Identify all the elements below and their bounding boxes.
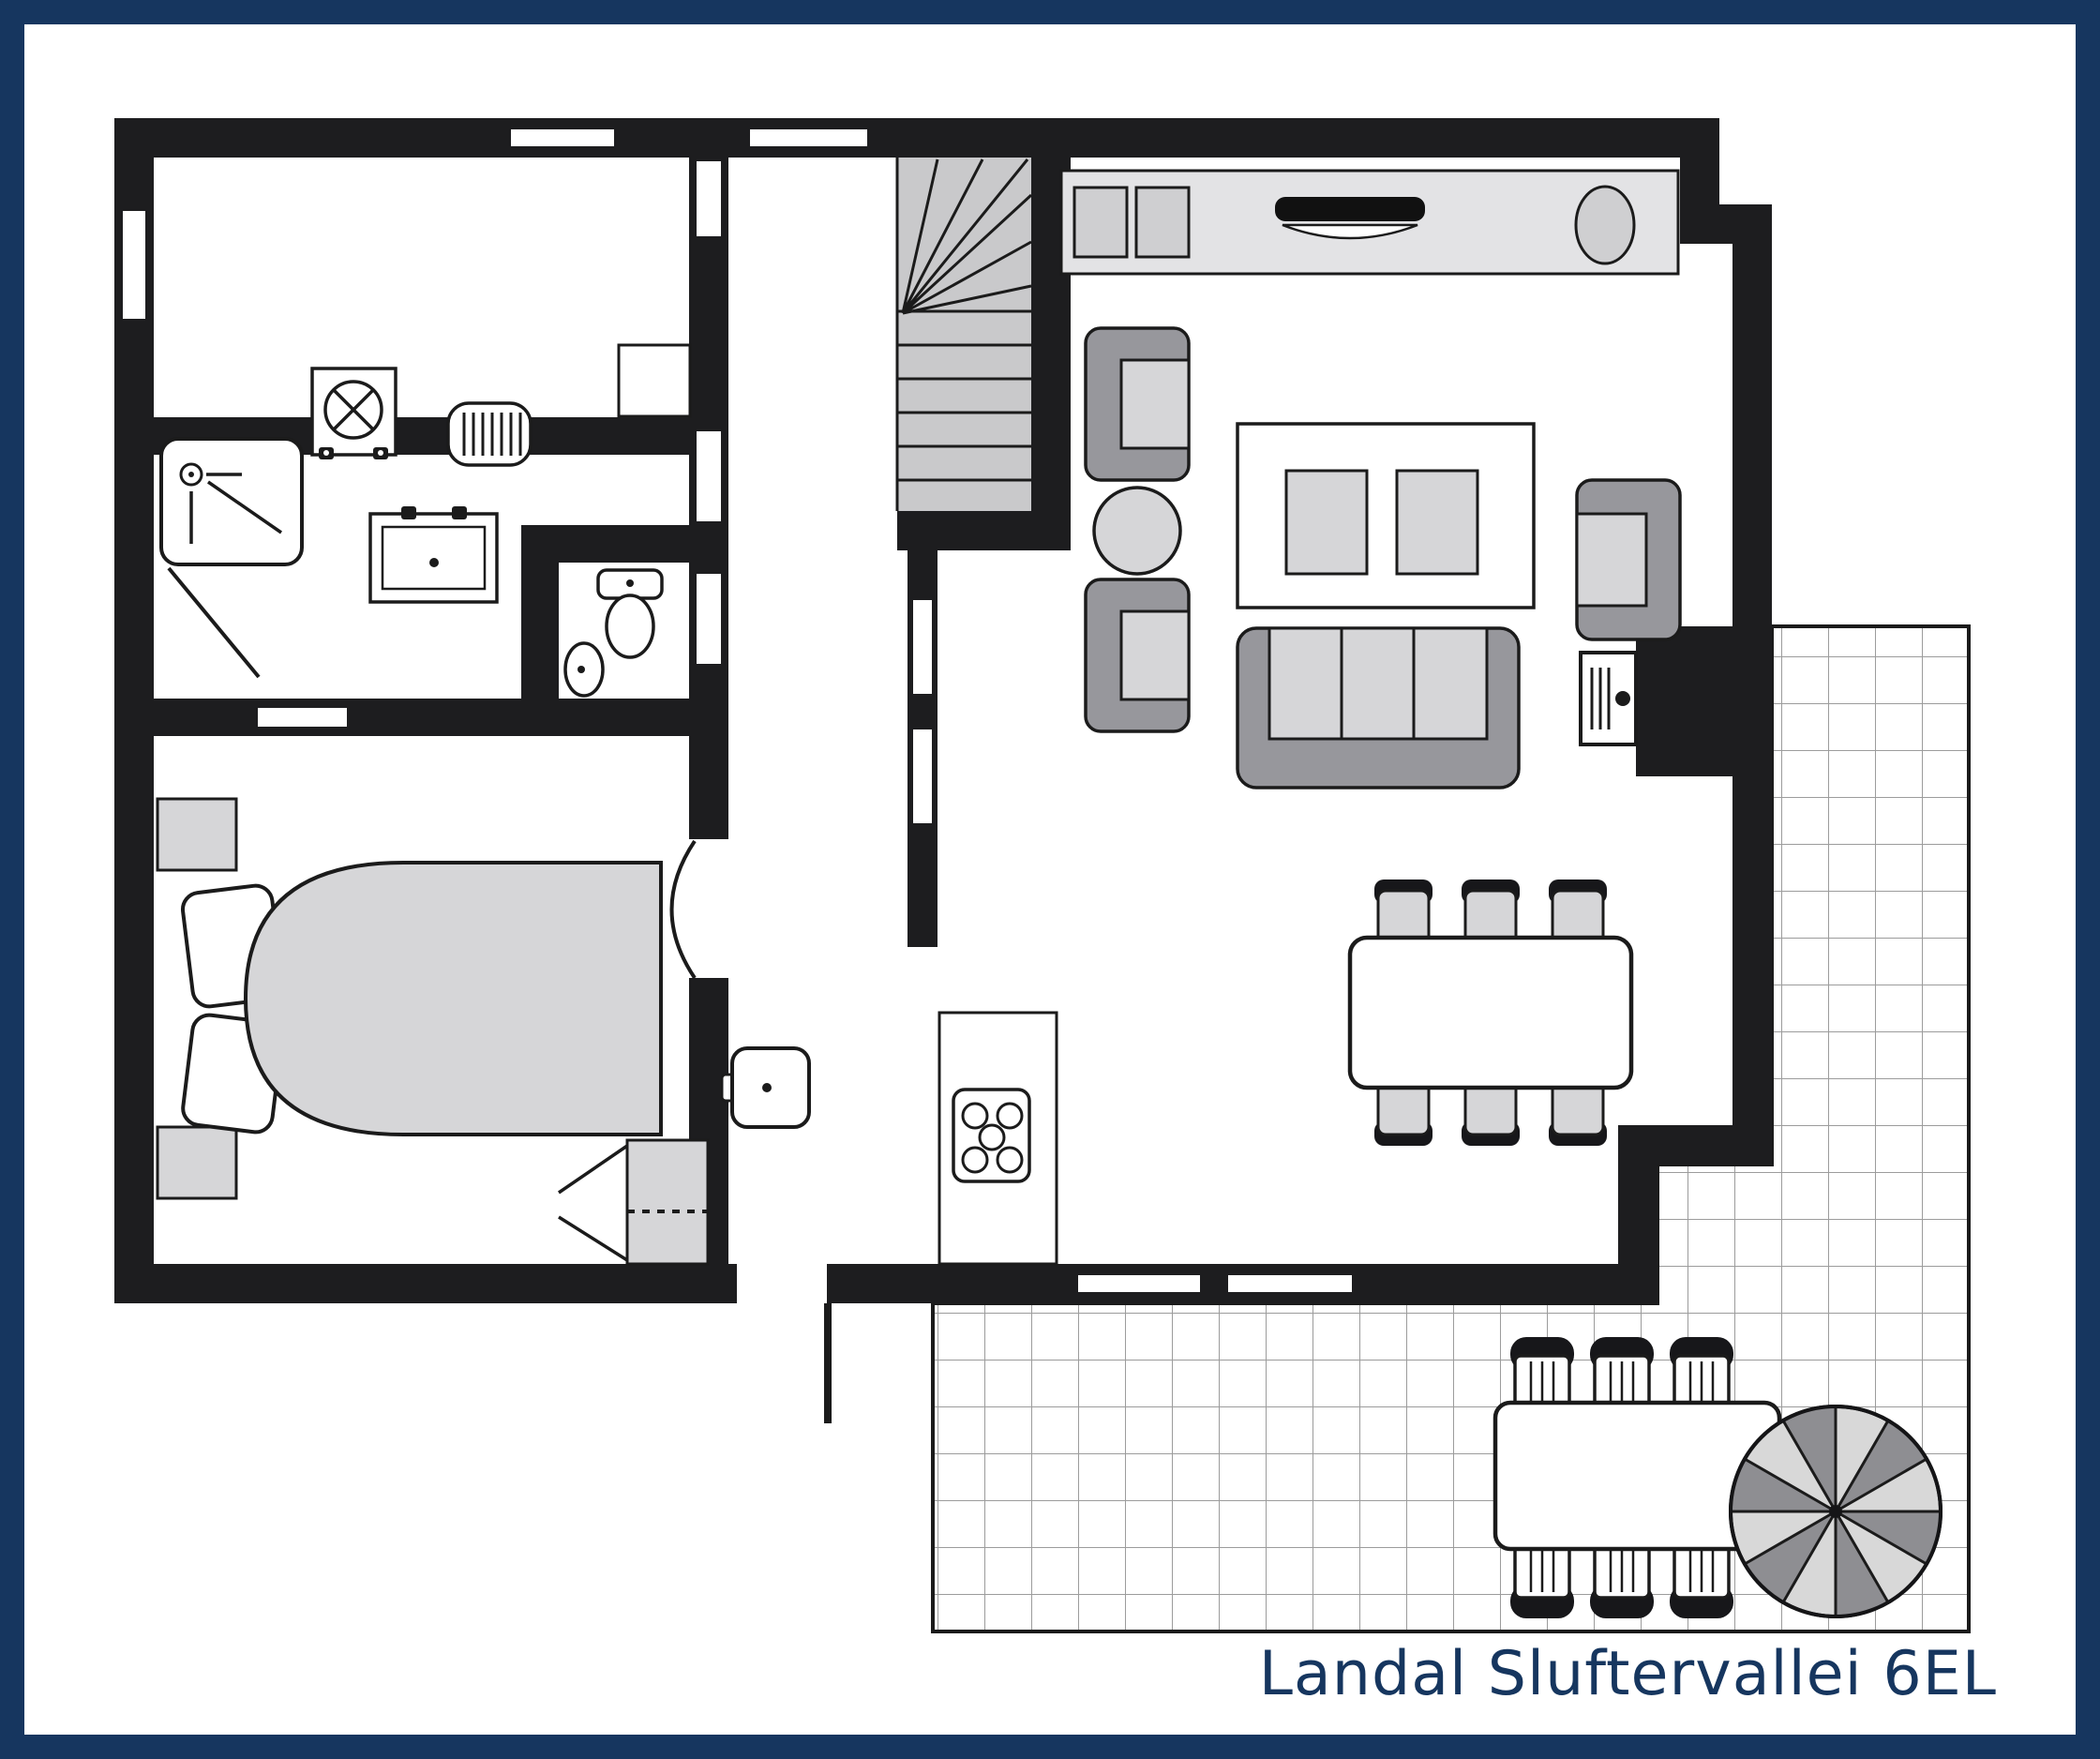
window-left-wall — [123, 211, 145, 319]
toilet — [598, 570, 662, 657]
armchair — [1577, 480, 1680, 639]
door-room1 — [697, 161, 721, 236]
dining-chair — [1462, 1080, 1520, 1146]
plan-title: Landal Sluftervallei 6EL — [1259, 1639, 1997, 1709]
washing-machine — [312, 368, 396, 459]
front-door-gap — [737, 1264, 827, 1303]
door-bathroom — [697, 431, 721, 521]
hob-plate — [1074, 188, 1127, 257]
window-bathroom-wall — [258, 708, 347, 727]
double-washbasin — [370, 506, 497, 602]
armchair — [1086, 579, 1189, 731]
wood-stove — [1581, 653, 1636, 744]
outdoor-chair — [1590, 1337, 1654, 1410]
kitchen-sink — [1275, 197, 1425, 221]
window-top-wall-hall — [750, 129, 867, 146]
outdoor-chair — [1510, 1543, 1574, 1618]
round-side-table — [1094, 488, 1180, 574]
door-living-1 — [913, 600, 932, 694]
floor-plan-drawing — [0, 0, 2100, 1759]
dining-chair — [1549, 1080, 1607, 1146]
outdoor-chair — [1510, 1337, 1574, 1410]
shower — [161, 439, 302, 564]
shower-door — [169, 568, 259, 677]
window-top-wall-left — [511, 129, 614, 146]
dining-chair — [1374, 1080, 1432, 1146]
kitchen-island — [939, 1013, 1057, 1264]
wardrobe — [559, 1140, 708, 1264]
radiator — [448, 403, 531, 465]
nightstand — [157, 799, 236, 870]
door-toilet — [697, 574, 721, 664]
door-living-2 — [913, 729, 932, 823]
nightstand — [157, 1127, 236, 1198]
coffee-table — [1237, 424, 1534, 608]
hob-plate — [1136, 188, 1189, 257]
winder-staircase — [897, 158, 1031, 511]
outdoor-chair — [1670, 1543, 1733, 1618]
armchair — [1086, 328, 1189, 480]
outdoor-chair — [1590, 1543, 1654, 1618]
double-bed — [246, 863, 661, 1135]
sofa-3-seat — [1237, 628, 1519, 788]
outdoor-chair — [1670, 1337, 1733, 1410]
hall-washbasin — [722, 1048, 809, 1127]
door-bedroom-gap — [689, 839, 728, 978]
window-bottom-wall-2 — [1228, 1275, 1352, 1292]
kitchen-counter — [1061, 171, 1678, 274]
window-bottom-wall-1 — [1078, 1275, 1200, 1292]
front-door-leaf — [824, 1303, 832, 1423]
round-basin — [1576, 187, 1634, 263]
dining-chair — [1374, 879, 1432, 945]
corner-basin — [565, 643, 603, 696]
dining-chair — [1462, 879, 1520, 945]
parasol — [1731, 1406, 1941, 1616]
dining-table — [1350, 938, 1631, 1088]
floor-plan-canvas: Landal Sluftervallei 6EL — [0, 0, 2100, 1759]
chimney-block — [1636, 626, 1732, 776]
dining-chair — [1549, 879, 1607, 945]
storage-cupboard — [619, 345, 690, 416]
